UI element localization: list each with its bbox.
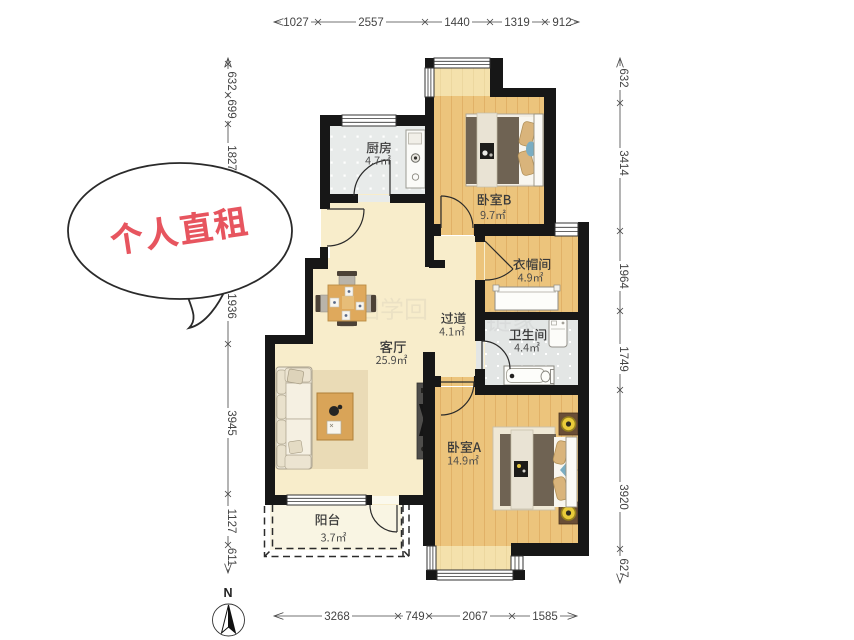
svg-text:3945: 3945 [225,410,237,436]
svg-text:611: 611 [225,548,237,566]
svg-text:1827: 1827 [225,145,237,171]
svg-text:N: N [223,586,232,600]
svg-text:2067: 2067 [462,611,488,623]
svg-text:1585: 1585 [532,611,558,623]
svg-text:699: 699 [225,99,237,118]
svg-text:632: 632 [617,68,629,87]
svg-text:1964: 1964 [617,263,629,289]
svg-text:749: 749 [405,611,424,623]
svg-text:1749: 1749 [617,346,629,372]
svg-text:632: 632 [225,71,237,90]
svg-text:3268: 3268 [324,611,350,623]
svg-text:1440: 1440 [444,17,470,29]
svg-text:3414: 3414 [617,150,629,176]
svg-text:1027: 1027 [283,17,309,29]
svg-text:1127: 1127 [225,509,237,534]
svg-text:3920: 3920 [617,484,629,510]
svg-text:1319: 1319 [504,17,530,29]
svg-text:912: 912 [552,17,571,29]
svg-text:2557: 2557 [358,17,384,29]
svg-text:1936: 1936 [225,293,237,319]
